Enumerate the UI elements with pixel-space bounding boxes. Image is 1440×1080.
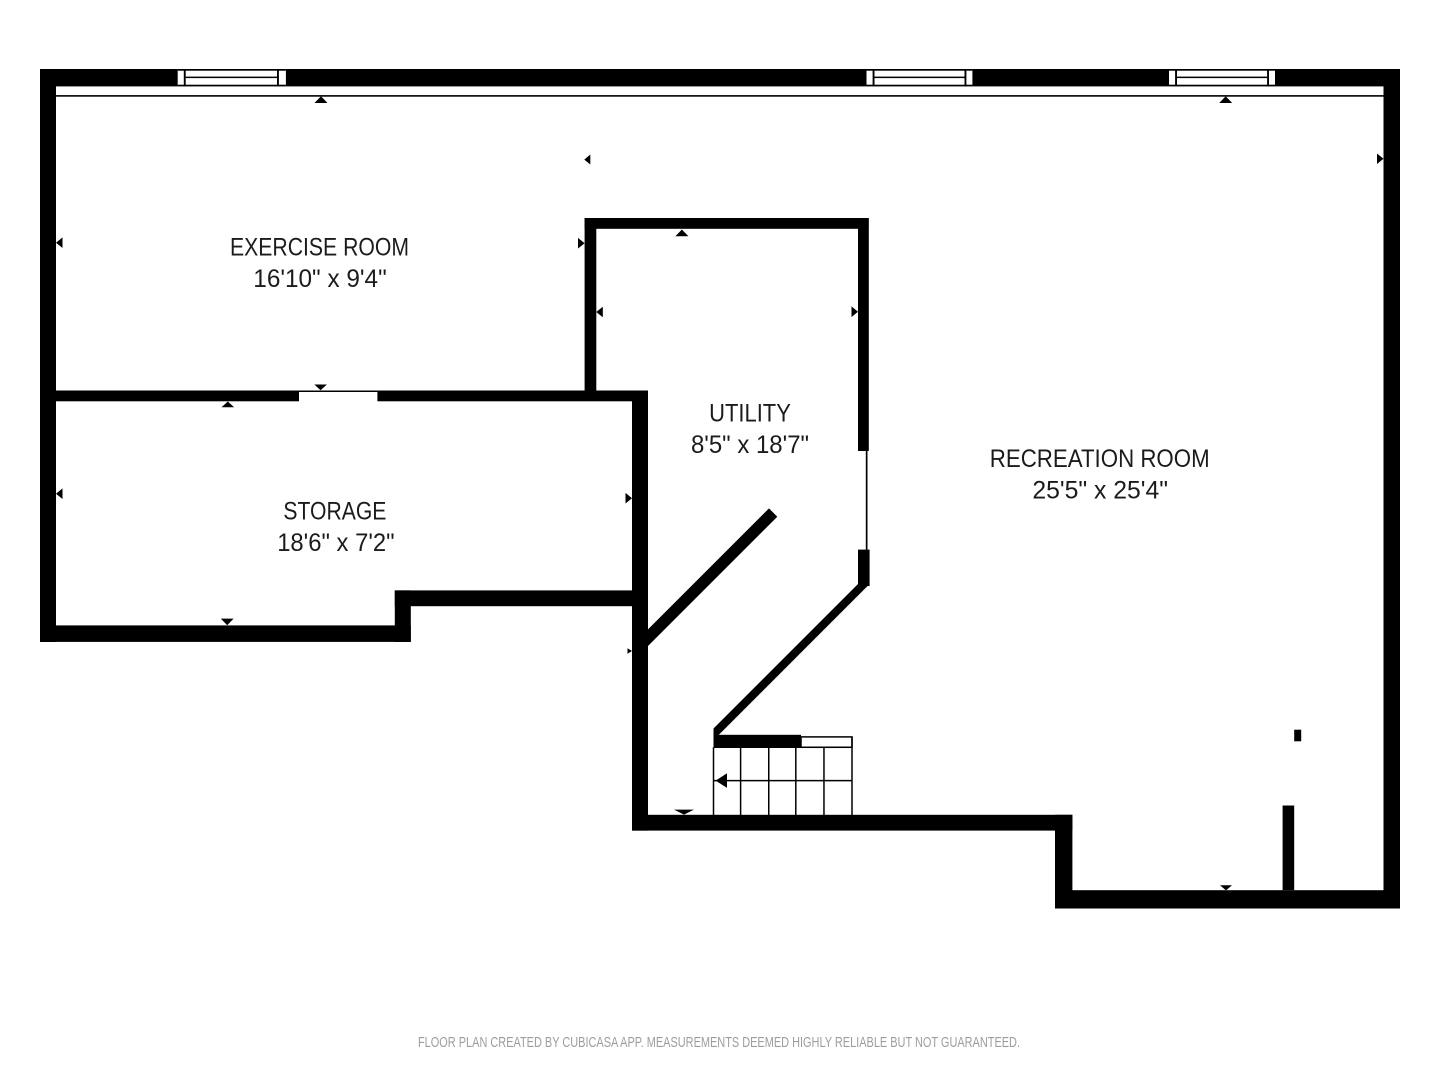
- svg-text:8'5" x 18'7": 8'5" x 18'7": [691, 431, 809, 459]
- svg-text:18'6" x 7'2": 18'6" x 7'2": [277, 529, 394, 557]
- svg-text:UTILITY: UTILITY: [709, 400, 791, 428]
- svg-text:STORAGE: STORAGE: [283, 497, 386, 525]
- svg-text:16'10" x 9'4": 16'10" x 9'4": [253, 265, 386, 293]
- svg-text:FLOOR PLAN CREATED BY CUBICASA: FLOOR PLAN CREATED BY CUBICASA APP. MEAS…: [418, 1035, 1020, 1051]
- svg-text:25'5" x 25'4": 25'5" x 25'4": [1032, 477, 1168, 505]
- svg-text:EXERCISE ROOM: EXERCISE ROOM: [230, 234, 409, 262]
- svg-text:RECREATION ROOM: RECREATION ROOM: [990, 445, 1210, 473]
